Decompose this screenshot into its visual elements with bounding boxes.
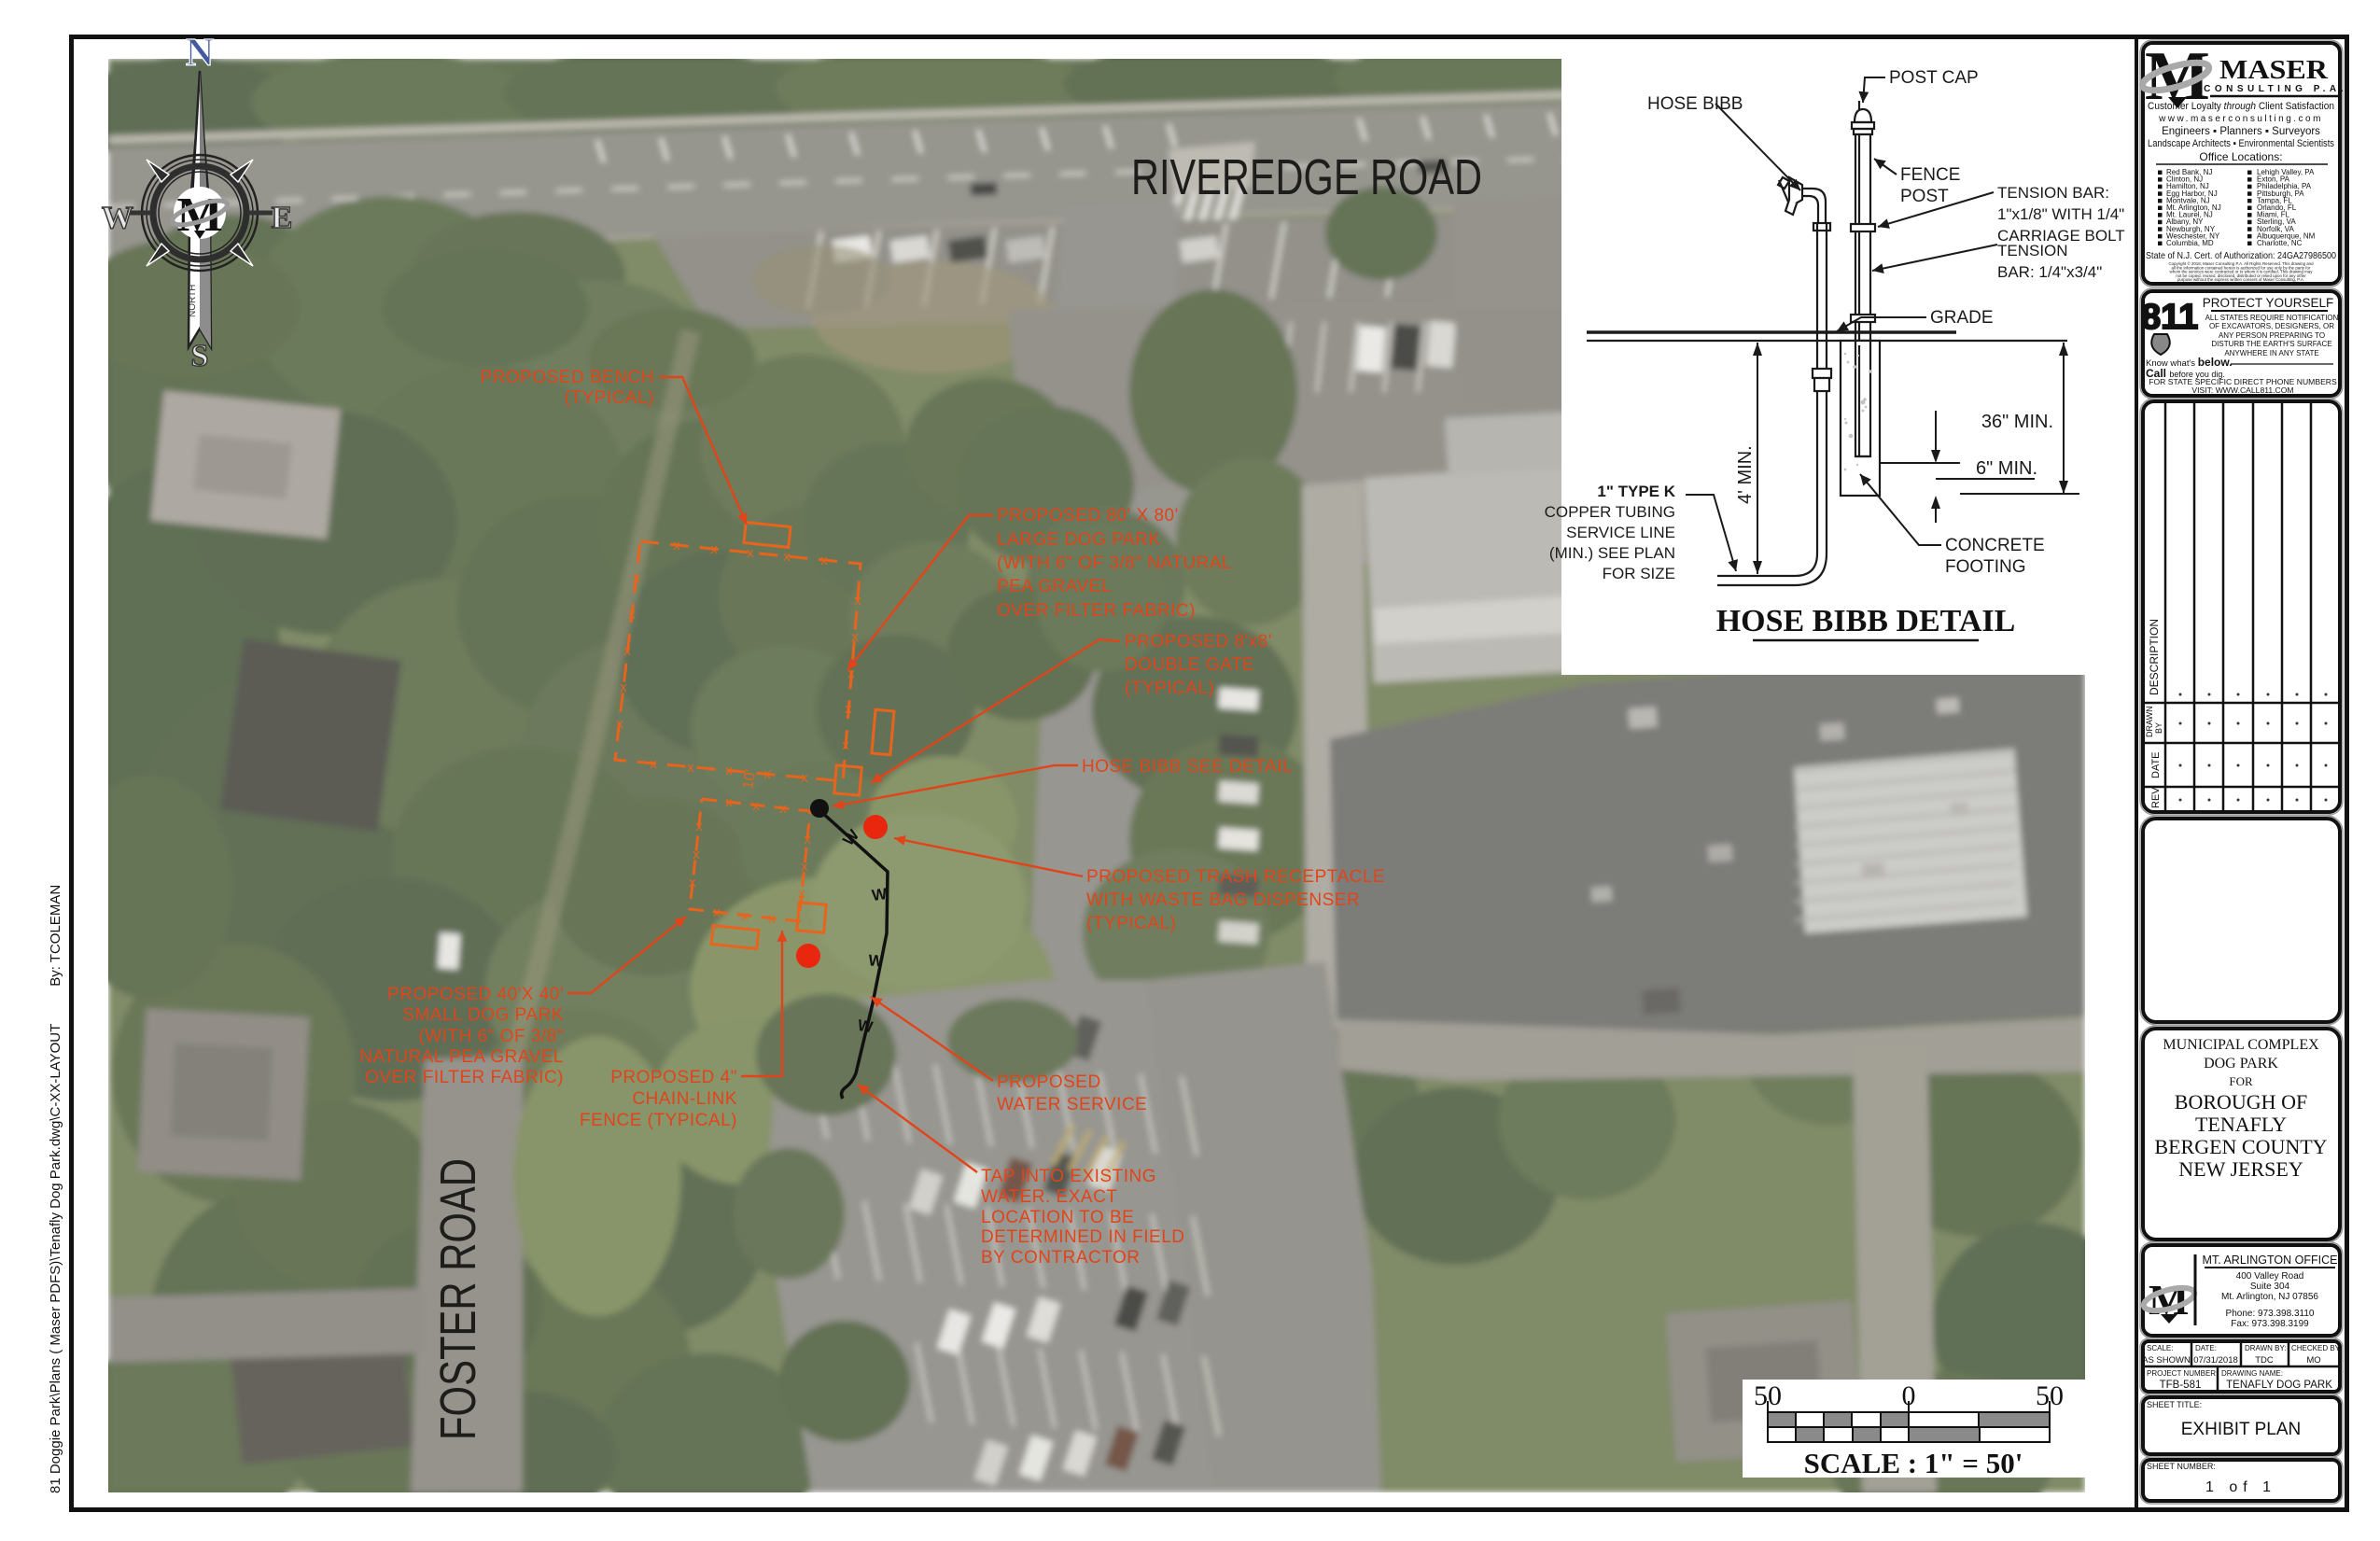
svg-text:x: x [801, 859, 808, 875]
svg-text:SHEET TITLE:: SHEET TITLE: [2147, 1400, 2202, 1409]
svg-text:(TYPICAL): (TYPICAL) [1086, 914, 1176, 933]
svg-text:(MIN.) SEE PLAN: (MIN.) SEE PLAN [1549, 544, 1675, 562]
svg-text:VISIT: WWW.CALL811.COM: VISIT: WWW.CALL811.COM [2191, 385, 2293, 395]
svg-text:HOSE BIBB: HOSE BIBB [1647, 94, 1743, 114]
svg-text:FENCE (TYPICAL): FENCE (TYPICAL) [580, 1111, 737, 1130]
svg-text:WATER. EXACT: WATER. EXACT [981, 1187, 1117, 1207]
svg-text:x: x [725, 794, 733, 810]
svg-text:PROJECT NUMBER:: PROJECT NUMBER: [2147, 1369, 2218, 1378]
svg-text:NATURAL PEA GRAVEL: NATURAL PEA GRAVEL [359, 1047, 564, 1067]
svg-text:DATE:: DATE: [2195, 1344, 2217, 1352]
svg-text:E: E [272, 201, 293, 235]
svg-text:ALL STATES REQUIRE NOTIFICATIO: ALL STATES REQUIRE NOTIFICATION [2205, 314, 2339, 322]
svg-text:COPPER TUBING: COPPER TUBING [1545, 503, 1675, 521]
svg-text:Engineers ▪ Planners ▪ Surveyo: Engineers ▪ Planners ▪ Surveyors [2162, 126, 2320, 137]
svg-text:Mt. Arlington, NJ 07856: Mt. Arlington, NJ 07856 [2221, 1292, 2318, 1302]
svg-text:x: x [695, 819, 703, 834]
svg-text:TFB-581: TFB-581 [2160, 1380, 2202, 1391]
svg-text:x: x [851, 629, 859, 645]
svg-text:x: x [798, 886, 805, 902]
svg-text:PEA GRAVEL: PEA GRAVEL [997, 577, 1112, 596]
svg-text:DOG PARK: DOG PARK [2204, 1056, 2278, 1072]
svg-text:DISTURB THE EARTH'S SURFACE: DISTURB THE EARTH'S SURFACE [2211, 340, 2331, 348]
svg-text:4' MIN.: 4' MIN. [1735, 445, 1756, 504]
svg-text:Fax: 973.398.3199: Fax: 973.398.3199 [2231, 1319, 2309, 1329]
svg-text:TAP INTO EXISTING: TAP INTO EXISTING [981, 1167, 1156, 1186]
svg-text:State of N.J. Cert. of Authori: State of N.J. Cert. of Authorization: 24… [2146, 251, 2336, 261]
svg-text:400 Valley Road: 400 Valley Road [2236, 1271, 2304, 1282]
svg-text:PROPOSED: PROPOSED [997, 1072, 1101, 1092]
svg-text:DATE: DATE [2150, 751, 2162, 778]
svg-text:ANYWHERE IN ANY STATE: ANYWHERE IN ANY STATE [2224, 349, 2318, 357]
svg-text:x: x [842, 737, 849, 753]
svg-text:x: x [741, 908, 749, 924]
svg-text:TENAFLY DOG PARK: TENAFLY DOG PARK [2226, 1380, 2332, 1391]
svg-text:WITH WASTE BAG DISPENSER: WITH WASTE BAG DISPENSER [1086, 890, 1360, 910]
svg-text:PROPOSED 40'X 40': PROPOSED 40'X 40' [387, 985, 564, 1004]
svg-text:REV: REV [2150, 787, 2162, 808]
svg-text:(TYPICAL): (TYPICAL) [1125, 679, 1214, 698]
svg-text:SCALE:: SCALE: [2147, 1344, 2173, 1352]
svg-text:EXHIBIT PLAN: EXHIBIT PLAN [2181, 1420, 2301, 1439]
svg-text:S: S [191, 339, 209, 373]
svg-text:Suite 304: Suite 304 [2250, 1282, 2290, 1292]
svg-text:Office Locations:: Office Locations: [2199, 150, 2282, 163]
svg-text:W: W [868, 951, 886, 970]
svg-text:x: x [752, 798, 760, 814]
svg-text:purpose without the express wr: purpose without the express written cons… [2177, 277, 2304, 282]
svg-text:PROPOSED BENCH: PROPOSED BENCH [481, 368, 654, 387]
svg-text:POST: POST [1900, 187, 1949, 206]
svg-text:DRAWING NAME:: DRAWING NAME: [2221, 1369, 2283, 1378]
svg-text:6" MIN.: 6" MIN. [1976, 458, 2037, 479]
svg-text:TENSION BAR:: TENSION BAR: [1997, 184, 2109, 202]
svg-text:CHAIN-LINK: CHAIN-LINK [632, 1089, 737, 1109]
svg-text:CHECKED BY:: CHECKED BY: [2291, 1344, 2342, 1352]
svg-text:81 Doggie Park\Plans ( Maser P: 81 Doggie Park\Plans ( Maser PDFS)\Tenaf… [48, 885, 63, 1493]
svg-text:TENAFLY: TENAFLY [2195, 1113, 2287, 1136]
svg-text:SMALL DOG PARK: SMALL DOG PARK [402, 1005, 564, 1025]
svg-text:x: x [845, 701, 852, 717]
svg-text:BOROUGH OF: BOROUGH OF [2175, 1090, 2307, 1114]
svg-text:ANY PERSON PREPARING TO: ANY PERSON PREPARING TO [2219, 331, 2325, 340]
svg-text:SHEET NUMBER:: SHEET NUMBER: [2147, 1462, 2216, 1471]
svg-text:x: x [689, 875, 696, 890]
svg-text:DRAWN: DRAWN [2145, 706, 2154, 737]
svg-text:SCALE : 1" = 50': SCALE : 1" = 50' [1804, 1447, 2023, 1479]
svg-text:x: x [804, 832, 811, 848]
svg-text:LARGE DOG PARK: LARGE DOG PARK [997, 530, 1161, 550]
svg-text:x: x [633, 570, 640, 586]
svg-text:PROTECT YOURSELF: PROTECT YOURSELF [2203, 296, 2334, 310]
svg-text:1"x1/8" WITH 1/4": 1"x1/8" WITH 1/4" [1997, 205, 2124, 223]
svg-text:www.maserconsulting.com: www.maserconsulting.com [2158, 114, 2323, 124]
svg-text:x: x [628, 607, 636, 623]
svg-text:HOSE BIBB SEE DETAIL: HOSE BIBB SEE DETAIL [1082, 757, 1293, 777]
svg-text:CONCRETE: CONCRETE [1945, 536, 2045, 555]
svg-text:x: x [783, 549, 791, 565]
svg-text:SERVICE LINE: SERVICE LINE [1566, 524, 1675, 541]
svg-text:RIVEREDGE ROAD: RIVEREDGE ROAD [1131, 149, 1482, 205]
svg-text:POST CAP: POST CAP [1889, 68, 1979, 88]
svg-text:BY: BY [2154, 722, 2163, 734]
svg-text:MO: MO [2306, 1355, 2320, 1366]
svg-text:07/31/2018: 07/31/2018 [2193, 1355, 2238, 1366]
svg-text:x: x [768, 911, 776, 927]
svg-text:FOR SIZE: FOR SIZE [1603, 565, 1675, 582]
svg-text:x: x [725, 763, 733, 778]
svg-text:x: x [710, 541, 718, 557]
svg-text:OF EXCAVATORS, DESIGNERS, OR: OF EXCAVATORS, DESIGNERS, OR [2209, 322, 2334, 330]
svg-text:(TYPICAL): (TYPICAL) [565, 388, 654, 408]
svg-text:DESCRIPTION: DESCRIPTION [2148, 619, 2161, 695]
svg-text:PROPOSED 8'x8': PROPOSED 8'x8' [1125, 632, 1272, 651]
svg-text:x: x [673, 538, 680, 553]
svg-text:CONSULTING P.A.: CONSULTING P.A. [2204, 84, 2347, 94]
svg-text:Charlotte, NC: Charlotte, NC [2257, 239, 2303, 247]
svg-text:W: W [102, 201, 133, 235]
svg-text:x: x [854, 593, 861, 609]
svg-text:FOR: FOR [2229, 1074, 2253, 1088]
svg-text:TENSION: TENSION [1997, 242, 2068, 259]
svg-text:WATER SERVICE: WATER SERVICE [997, 1095, 1147, 1114]
svg-text:x: x [623, 643, 631, 659]
svg-text:x: x [763, 766, 771, 782]
svg-text:(WITH 6" OF 3/8" NATURAL: (WITH 6" OF 3/8" NATURAL [997, 553, 1232, 573]
svg-text:BY CONTRACTOR: BY CONTRACTOR [981, 1248, 1141, 1268]
svg-text:50: 50 [1754, 1380, 1782, 1411]
svg-text:TDC: TDC [2255, 1355, 2274, 1366]
svg-text:N: N [186, 32, 214, 75]
svg-text:x: x [713, 904, 721, 920]
svg-text:10': 10' [740, 768, 759, 790]
svg-text:FENCE: FENCE [1900, 165, 1960, 185]
svg-text:DETERMINED IN FIELD: DETERMINED IN FIELD [981, 1227, 1185, 1247]
svg-text:PROPOSED 4": PROPOSED 4" [610, 1068, 737, 1087]
svg-text:x: x [693, 847, 700, 862]
svg-text:x: x [616, 716, 623, 732]
svg-text:1 of 1: 1 of 1 [2205, 1479, 2276, 1495]
svg-text:Phone: 973.398.3110: Phone: 973.398.3110 [2226, 1309, 2315, 1319]
svg-text:x: x [650, 756, 657, 772]
svg-text:DOUBLE GATE: DOUBLE GATE [1125, 655, 1254, 675]
svg-text:HOSE BIBB DETAIL: HOSE BIBB DETAIL [1716, 604, 2016, 638]
svg-text:GRADE: GRADE [1930, 308, 1994, 328]
svg-text:x: x [779, 801, 787, 817]
svg-text:NORTH: NORTH [188, 285, 198, 317]
svg-text:OVER FILTER FABRIC): OVER FILTER FABRIC) [365, 1068, 564, 1087]
svg-text:FOSTER ROAD: FOSTER ROAD [430, 1158, 486, 1440]
svg-text:x: x [820, 553, 828, 568]
svg-text:OVER FILTER FABRIC): OVER FILTER FABRIC) [997, 601, 1196, 621]
svg-text:AS SHOWN: AS SHOWN [2142, 1355, 2191, 1366]
svg-text:x: x [687, 760, 694, 776]
svg-text:MT. ARLINGTON OFFICE: MT. ARLINGTON OFFICE [2203, 1254, 2338, 1267]
svg-text:MASER: MASER [2219, 56, 2329, 85]
svg-text:LOCATION TO BE: LOCATION TO BE [981, 1208, 1134, 1227]
svg-text:Landscape Architects ▪ Environ: Landscape Architects ▪ Environmental Sci… [2148, 138, 2334, 149]
svg-text:x: x [747, 545, 754, 561]
svg-text:PROPOSED 80' X 80': PROPOSED 80' X 80' [997, 506, 1179, 525]
svg-text:Columbia, MD: Columbia, MD [2166, 239, 2214, 247]
svg-text:DRAWN BY:: DRAWN BY: [2245, 1344, 2287, 1352]
svg-text:x: x [801, 770, 808, 786]
svg-text:BAR: 1/4"x3/4": BAR: 1/4"x3/4" [1997, 263, 2102, 281]
svg-text:FOOTING: FOOTING [1945, 557, 2026, 577]
svg-text:Customer Loyalty through Clien: Customer Loyalty through Client Satisfac… [2148, 101, 2334, 112]
svg-text:811: 811 [2141, 298, 2198, 337]
svg-text:1" TYPE K: 1" TYPE K [1597, 483, 1675, 500]
svg-text:MUNICIPAL COMPLEX: MUNICIPAL COMPLEX [2163, 1037, 2319, 1053]
svg-text:0: 0 [1902, 1380, 1916, 1411]
svg-text:PROPOSED TRASH RECEPTACLE: PROPOSED TRASH RECEPTACLE [1086, 867, 1385, 887]
svg-text:NEW JERSEY: NEW JERSEY [2178, 1157, 2303, 1181]
svg-text:x: x [620, 679, 627, 695]
svg-text:36" MIN.: 36" MIN. [1981, 412, 2053, 432]
svg-text:(WITH 6" OF 3/8": (WITH 6" OF 3/8" [418, 1027, 564, 1046]
svg-text:50: 50 [2036, 1380, 2064, 1411]
svg-text:BERGEN COUNTY: BERGEN COUNTY [2154, 1135, 2327, 1158]
